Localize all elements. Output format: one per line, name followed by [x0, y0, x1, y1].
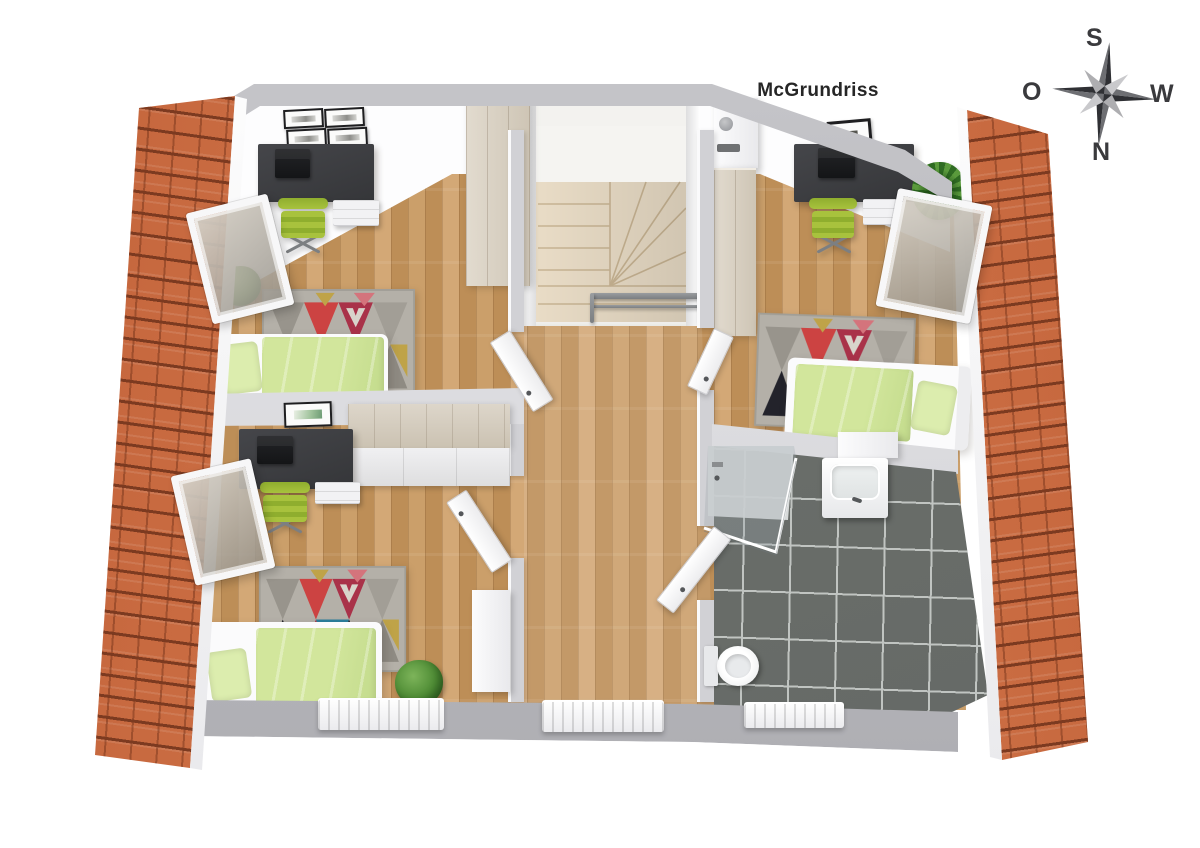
wall-left-lower: [508, 558, 524, 702]
compass-letter-north: N: [1092, 138, 1110, 167]
pillow: [909, 380, 958, 437]
door-handle: [458, 510, 465, 517]
sideboard-front: [350, 448, 510, 486]
door-handle: [703, 376, 710, 383]
picture-content: [292, 115, 315, 122]
sink-vanity: [822, 458, 888, 518]
ceiling-light-icon: [719, 117, 733, 131]
office-chair: [807, 198, 859, 248]
picture-content: [336, 134, 359, 141]
chair-seat: [281, 211, 325, 238]
headboard: [955, 366, 972, 451]
laptop: [275, 149, 310, 178]
compass-letter-west: W: [1150, 80, 1174, 109]
stair-railing-lower: [592, 305, 702, 308]
picture-frame: [324, 107, 365, 128]
duvet: [256, 628, 376, 706]
toilet: [717, 646, 759, 686]
plan-title: McGrundriss: [748, 80, 888, 102]
door-handle: [525, 390, 532, 397]
bed: [194, 622, 382, 708]
chair-seat: [812, 211, 854, 238]
mirror-cabinet: [838, 432, 898, 458]
sideboard-top: [348, 404, 510, 448]
office-chair: [258, 482, 312, 528]
chair-backrest: [260, 482, 310, 493]
toilet-tank: [704, 646, 718, 686]
radiator: [744, 702, 844, 728]
drawer-unit: [315, 482, 360, 504]
floorplan-scene: McGrundriss S O W N: [0, 0, 1200, 848]
radiator: [542, 700, 664, 732]
picture-content: [333, 114, 356, 121]
laptop: [257, 436, 293, 464]
drawer-unit: [333, 200, 379, 226]
chair-backrest: [809, 198, 857, 209]
tall-cabinet: [472, 590, 510, 692]
stair-railing: [592, 293, 702, 299]
wall-left-upper: [508, 130, 524, 332]
radiator: [318, 698, 444, 730]
duvet: [792, 364, 914, 442]
picture-frame: [283, 108, 324, 129]
office-chair: [276, 198, 330, 248]
wardrobe-right: [714, 168, 756, 336]
picture-content: [294, 410, 322, 419]
pillow: [206, 647, 253, 702]
picture-frame-group: [283, 106, 365, 148]
compass-letter-east: O: [1022, 78, 1041, 107]
toilet-seat: [725, 654, 751, 678]
picture-frame: [284, 401, 333, 428]
chair-seat: [263, 495, 307, 522]
railing-post-left: [590, 293, 594, 323]
duvet: [262, 337, 384, 399]
picture-content: [295, 135, 318, 142]
chair-backrest: [278, 198, 328, 209]
vent-slot: [717, 144, 740, 152]
compass-letter-south: S: [1086, 24, 1103, 53]
wall-right-upper: [697, 130, 714, 328]
sink-bowl: [830, 464, 880, 500]
door-handle: [679, 586, 686, 593]
